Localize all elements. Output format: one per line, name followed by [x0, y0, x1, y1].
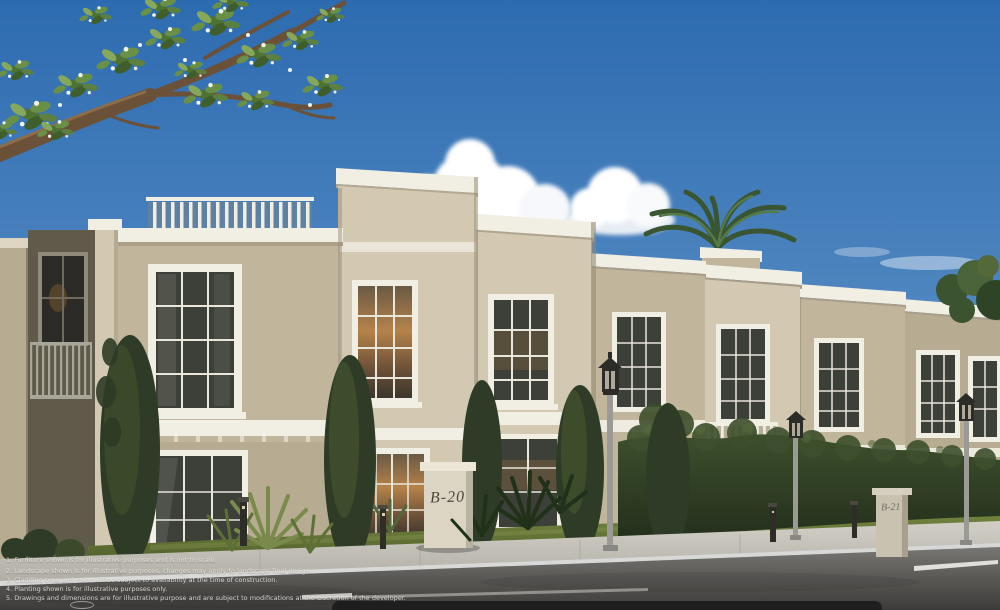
scene-canvas [0, 0, 1000, 610]
window-upper-d [612, 312, 666, 412]
developer-logo-mark [70, 601, 94, 609]
unit-sign-b20-label: B-20 [430, 488, 466, 507]
architectural-render: B-20 B-21 1. Furniture shown is for illu… [0, 0, 1000, 610]
disclaimer-block: 1. Furniture shown is for illustrative p… [6, 557, 476, 603]
window-upper-c [484, 294, 558, 410]
window-far-left [38, 252, 88, 346]
sign-b21-pillar [872, 488, 912, 557]
sign-b20-pillar [416, 462, 480, 553]
building-far-left [0, 230, 95, 562]
window-upper-g2 [968, 356, 1000, 442]
disclaimer-line-3: 3. Cladding type and color will be subje… [6, 577, 476, 585]
disclaimer-line-4: 4. Planting shown is for illustrative pu… [6, 586, 476, 594]
window-upper-e [716, 324, 770, 424]
disclaimer-line-1: 1. Furniture shown is for illustrative p… [6, 557, 476, 565]
window-upper-f [814, 338, 864, 432]
window-upper-a [144, 264, 246, 419]
window-upper-g1 [916, 350, 960, 438]
unit-sign-b21-label: B-21 [881, 502, 901, 514]
disclaimer-line-2: 2. Landscape shown is for illustrative p… [6, 568, 476, 576]
balcony-railing-far-left [30, 342, 92, 399]
